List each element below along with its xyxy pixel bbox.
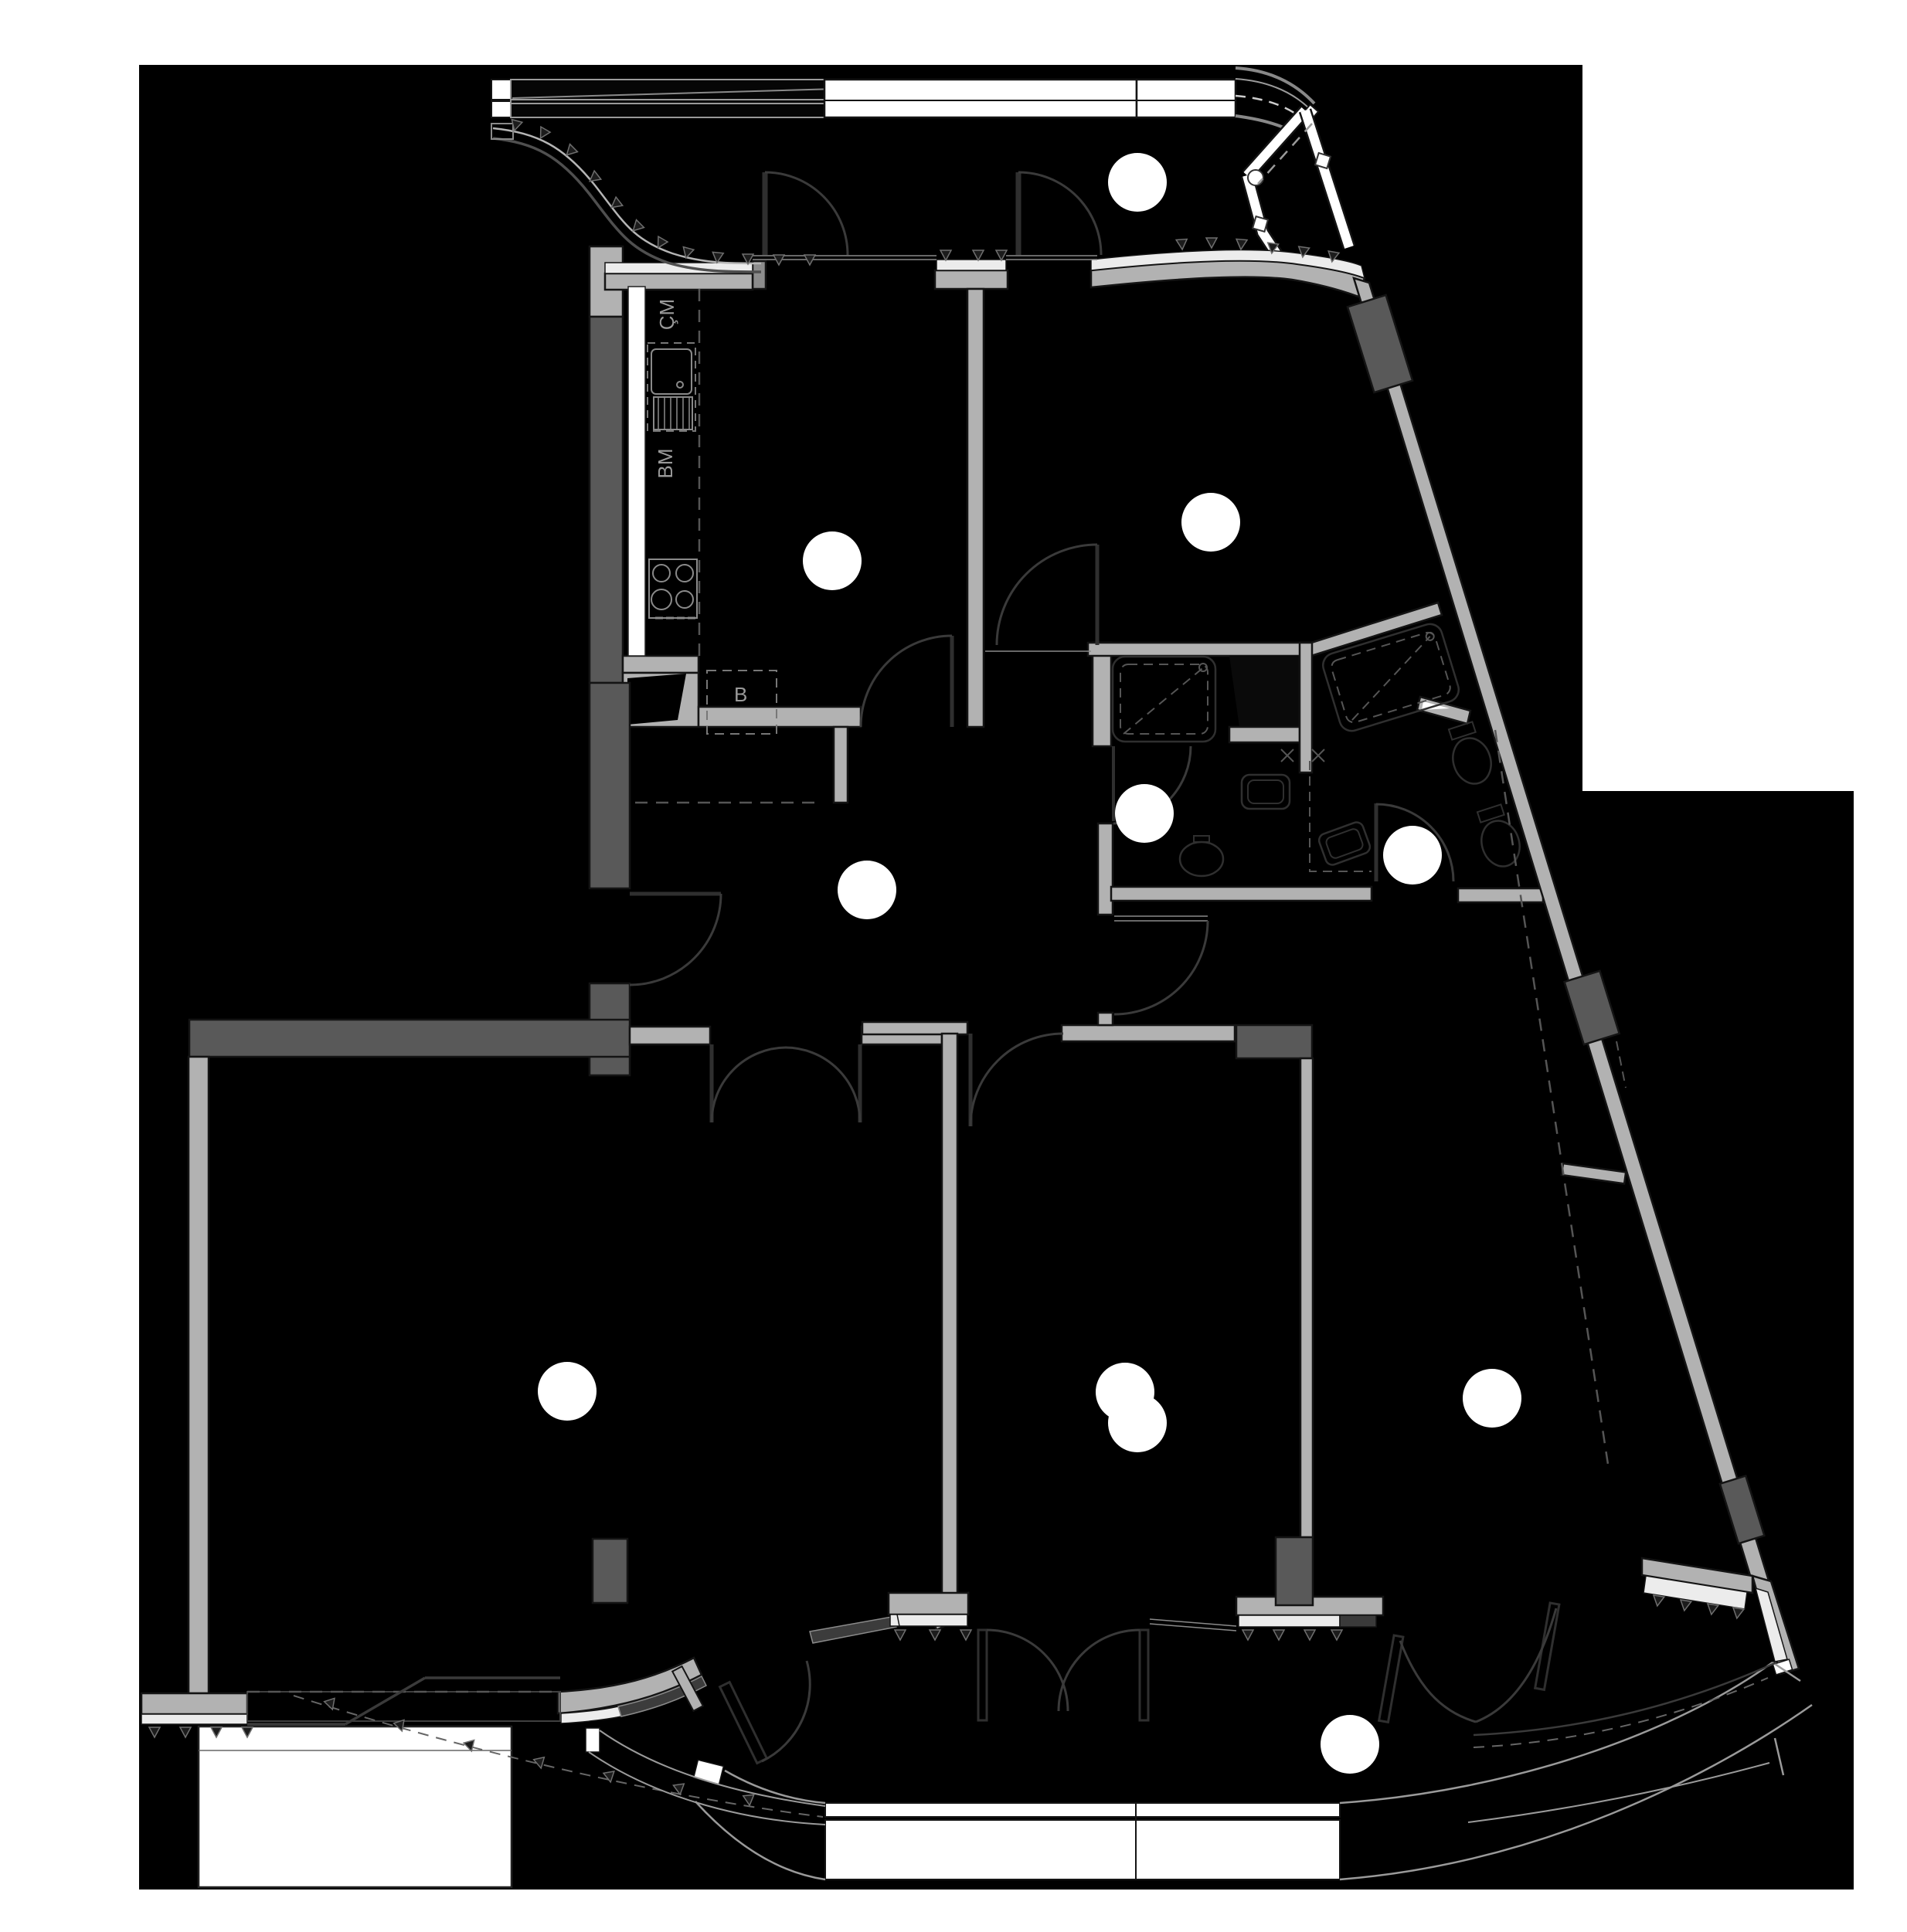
svg-text:BM: BM xyxy=(654,449,677,479)
svg-text:ÇM: ÇM xyxy=(655,299,678,330)
svg-text:B: B xyxy=(734,683,747,706)
